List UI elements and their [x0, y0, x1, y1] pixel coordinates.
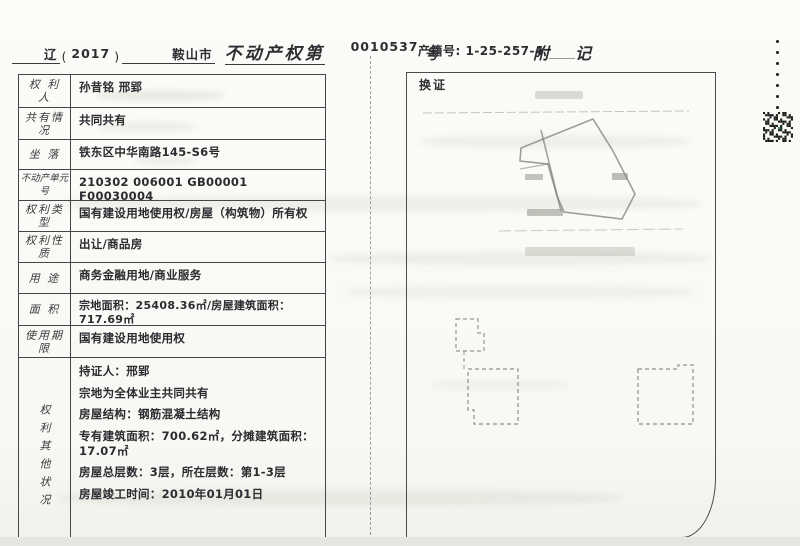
row-label: 权利类型 — [19, 201, 71, 231]
other-status-vertical-label: 权利其他状况 — [38, 404, 51, 512]
other-status-lines: 持证人：邢郢 宗地为全体业主共同共有 房屋结构：钢筋混凝土结构 专有建筑面积：7… — [71, 358, 325, 539]
table-row: 用 途 商务金融用地/商业服务 — [19, 263, 325, 294]
other-line: 房屋总层数：3层，所在层数：第1-3层 — [79, 465, 323, 480]
table-row: 权 利 人 孙昔铭 邢郢 — [19, 75, 325, 108]
annex-title: 附记 — [533, 40, 591, 64]
row-label: 面 积 — [19, 294, 71, 325]
row-label: 使用期限 — [19, 326, 71, 357]
region-label: 辽 — [42, 44, 60, 64]
binding-dots — [776, 40, 779, 117]
row-label: 坐 落 — [19, 140, 71, 169]
table-row-other-status: 权利其他状况 持证人：邢郢 宗地为全体业主共同共有 房屋结构：钢筋混凝土结构 专… — [19, 358, 325, 539]
dot — [776, 84, 779, 87]
row-value: 国有建设用地使用权/房屋（构筑物）所有权 — [71, 201, 325, 231]
blank-underline — [122, 63, 170, 64]
other-line: 房屋结构：钢筋混凝土结构 — [79, 407, 323, 422]
row-value: 国有建设用地使用权 — [71, 326, 325, 357]
table-row: 权利类型 国有建设用地使用权/房屋（构筑物）所有权 — [19, 201, 325, 232]
page-fold-line — [370, 56, 371, 540]
bracket-open: ( — [60, 49, 70, 64]
row-value: 铁东区中华南路145-S6号 — [71, 140, 325, 169]
other-line: 房屋竣工时间：2010年01月01日 — [79, 487, 323, 502]
year-value: 2017 — [69, 46, 112, 61]
row-value: 共同共有 — [71, 108, 325, 139]
dot — [776, 106, 779, 109]
certificate-number-line: 辽(2017)鞍山市不动产权第0010537号 — [12, 40, 439, 64]
annex-box: 换证 — [406, 72, 716, 538]
table-row: 坐 落 铁东区中华南路145-S6号 — [19, 140, 325, 170]
other-line: 持证人：邢郢 — [79, 364, 323, 379]
row-label: 权 利 人 — [19, 75, 71, 107]
dot — [776, 62, 779, 65]
annex-title-gap — [549, 47, 575, 59]
dot — [776, 51, 779, 54]
other-line: 专有建筑面积：700.62㎡，分摊建筑面积：17.07㎡ — [79, 429, 323, 459]
other-line: 宗地为全体业主共同共有 — [79, 386, 323, 401]
row-label: 用 途 — [19, 263, 71, 293]
row-label: 权利性质 — [19, 232, 71, 262]
dot — [776, 95, 779, 98]
row-value: 210302 006001 GB00001 F00030004 — [71, 170, 325, 200]
row-value: 宗地面积：25408.36㎡/房屋建筑面积：717.69㎡ — [71, 294, 325, 325]
row-value: 孙昔铭 邢郢 — [71, 75, 325, 107]
cadastral-sketch — [407, 73, 717, 539]
serial-number: 0010537 — [351, 39, 419, 54]
table-row: 权利性质 出让/商品房 — [19, 232, 325, 263]
property-info-table: 权 利 人 孙昔铭 邢郢 共有情况 共同共有 坐 落 铁东区中华南路145-S6… — [18, 74, 326, 538]
bracket-close: ) — [112, 49, 122, 64]
table-row: 使用期限 国有建设用地使用权 — [19, 326, 325, 358]
row-value: 出让/商品房 — [71, 232, 325, 262]
blank-underline — [12, 63, 42, 64]
property-code: 产籍号: 1-25-257-4 — [418, 40, 544, 59]
dot — [776, 40, 779, 43]
table-row: 共有情况 共同共有 — [19, 108, 325, 140]
table-row: 面 积 宗地面积：25408.36㎡/房屋建筑面积：717.69㎡ — [19, 294, 325, 326]
row-value: 商务金融用地/商业服务 — [71, 263, 325, 293]
row-label: 共有情况 — [19, 108, 71, 139]
certificate-type-label: 不动产权第 — [225, 39, 325, 65]
table-row: 不动产单元号 210302 006001 GB00001 F00030004 — [19, 170, 325, 201]
row-label: 权利其他状况 — [19, 358, 71, 539]
row-label: 不动产单元号 — [19, 170, 71, 200]
dot — [776, 73, 779, 76]
city-label: 鞍山市 — [170, 44, 215, 64]
scan-bottom-edge — [0, 537, 800, 546]
